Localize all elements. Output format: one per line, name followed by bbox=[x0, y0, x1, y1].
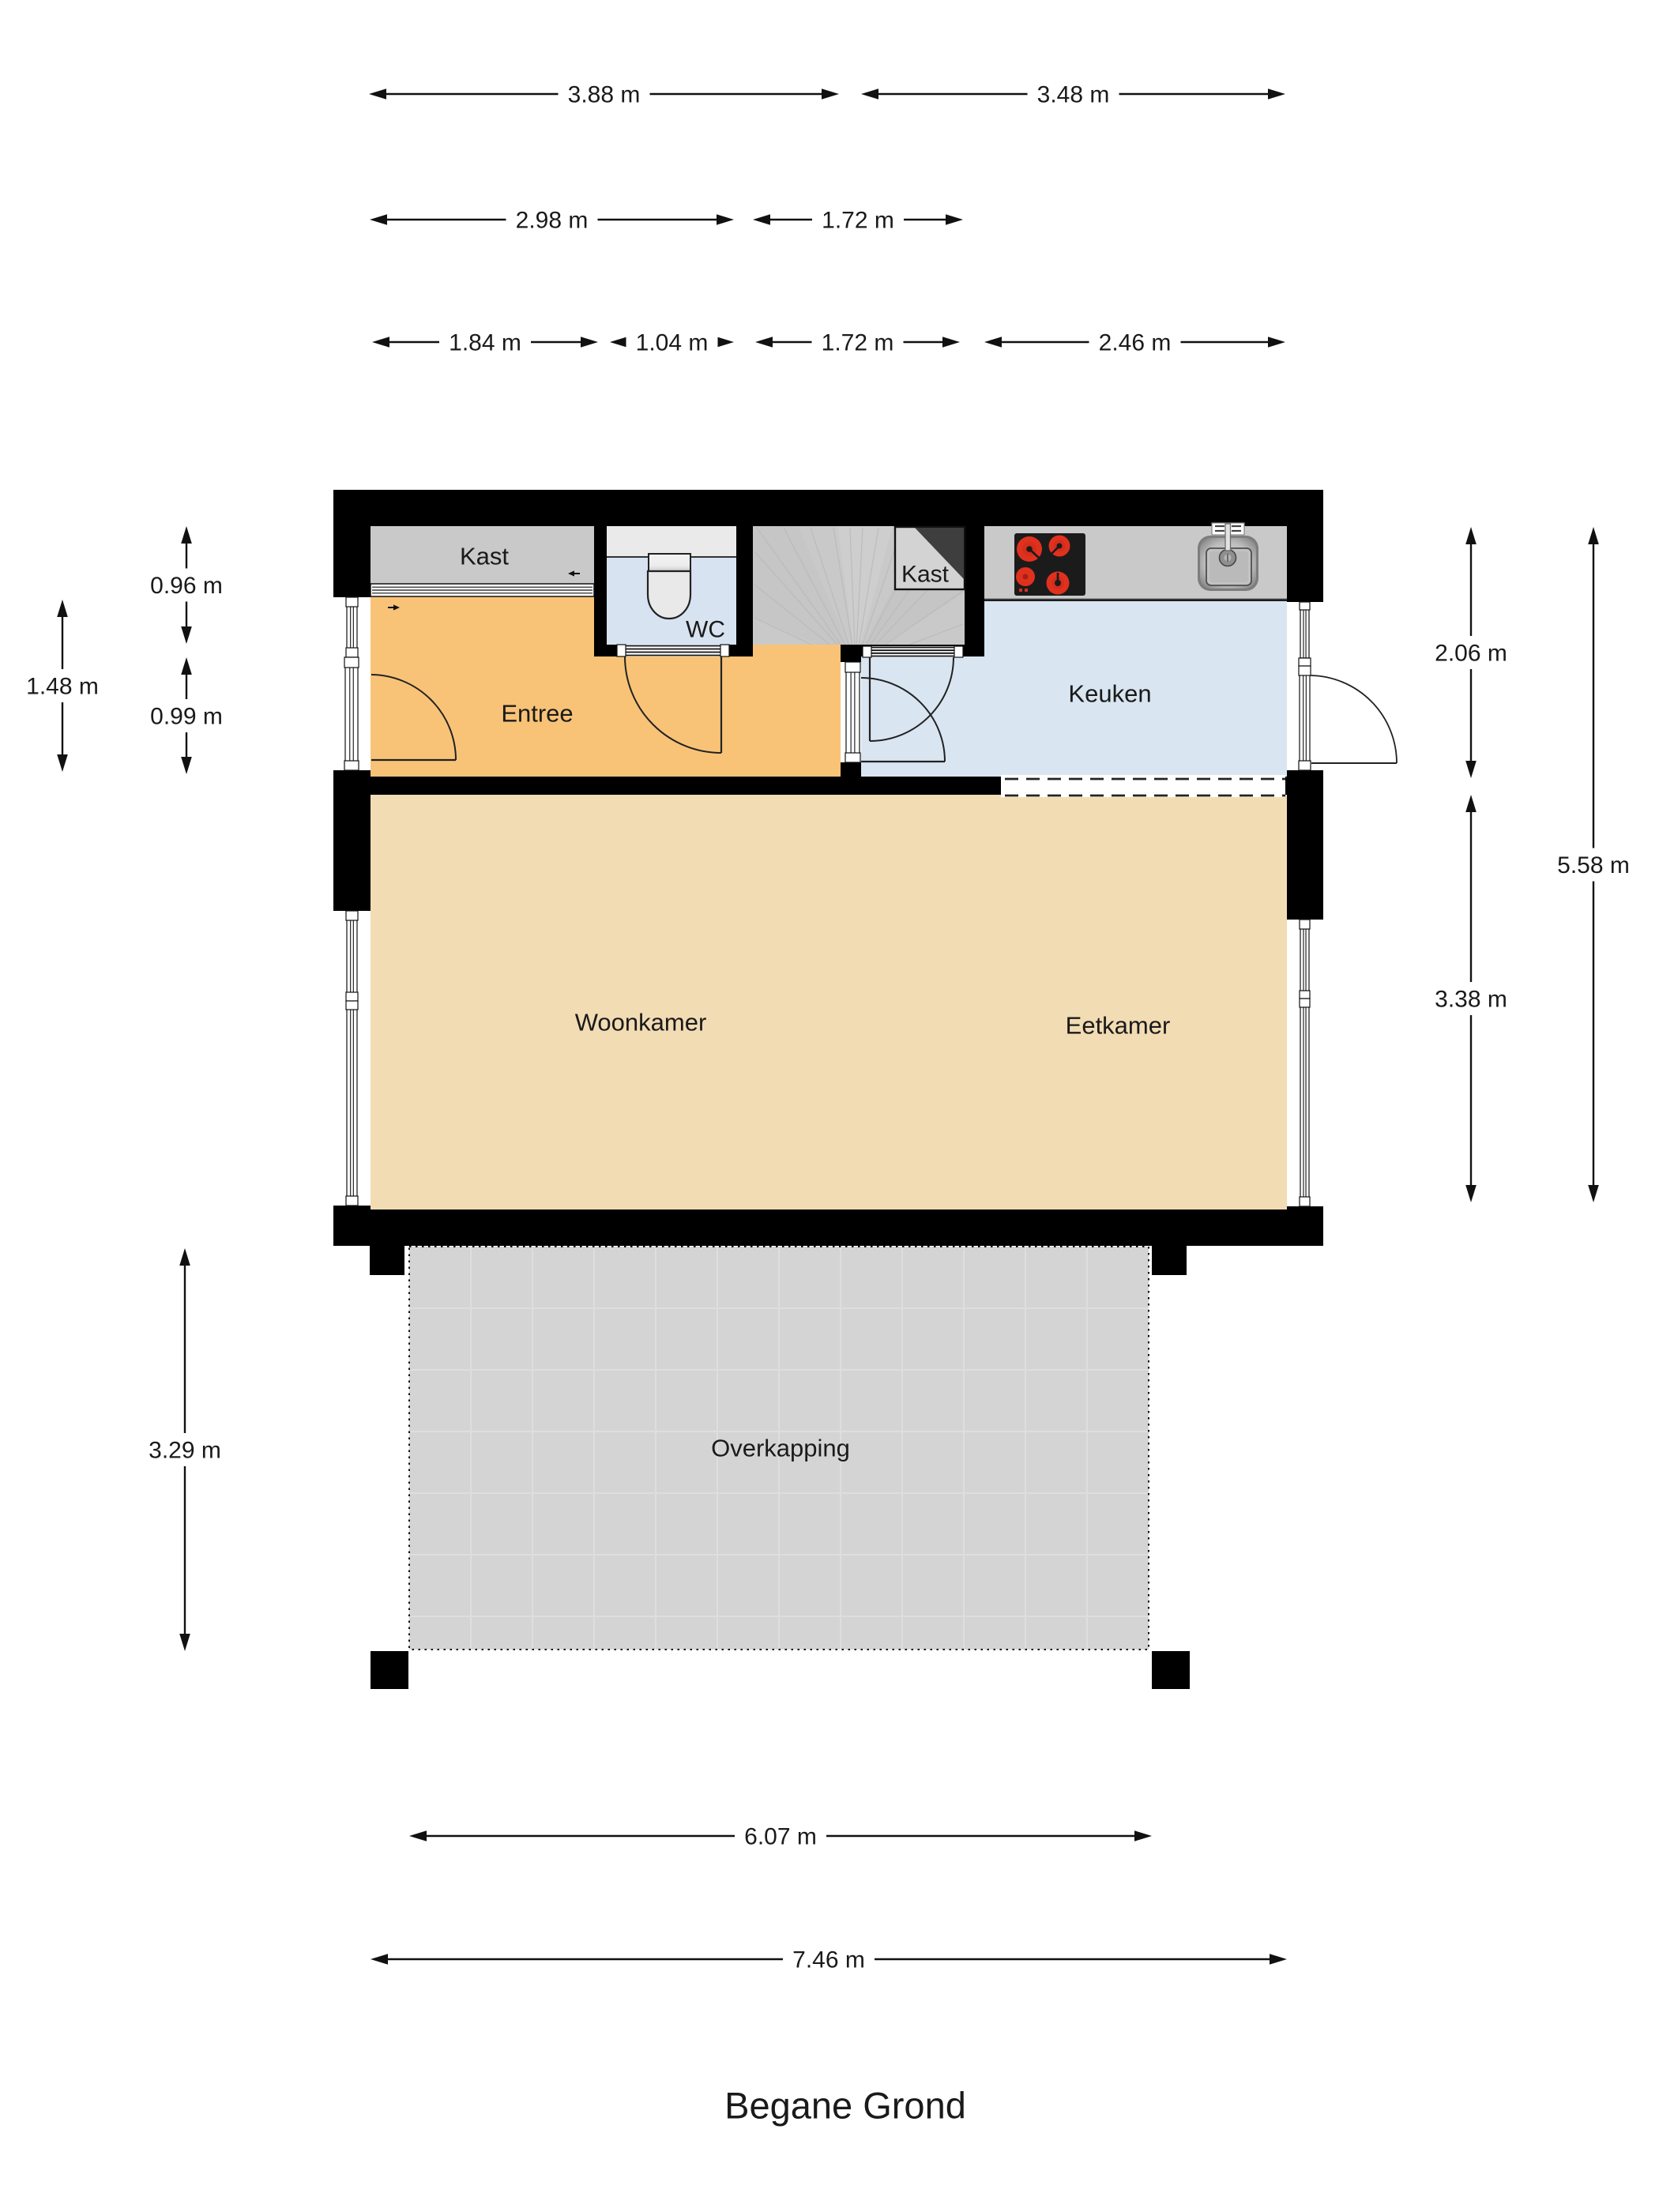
svg-text:WC: WC bbox=[686, 617, 725, 643]
svg-text:Woonkamer: Woonkamer bbox=[575, 1009, 707, 1036]
svg-text:1.72 m: 1.72 m bbox=[822, 330, 894, 356]
svg-text:5.58 m: 5.58 m bbox=[1557, 852, 1630, 878]
svg-text:Kast: Kast bbox=[901, 562, 950, 588]
svg-text:1.48 m: 1.48 m bbox=[26, 674, 99, 700]
svg-text:3.29 m: 3.29 m bbox=[149, 1438, 221, 1464]
svg-text:3.38 m: 3.38 m bbox=[1435, 987, 1507, 1013]
svg-text:Entree: Entree bbox=[501, 700, 573, 728]
svg-text:1.84 m: 1.84 m bbox=[449, 330, 521, 356]
svg-text:Keuken: Keuken bbox=[1068, 680, 1151, 708]
svg-text:Kast: Kast bbox=[460, 543, 509, 570]
svg-text:7.46 m: 7.46 m bbox=[792, 1947, 865, 1973]
svg-text:Eetkamer: Eetkamer bbox=[1066, 1012, 1171, 1040]
svg-text:Overkapping: Overkapping bbox=[711, 1435, 850, 1462]
svg-text:0.96 m: 0.96 m bbox=[150, 573, 223, 599]
svg-text:3.88 m: 3.88 m bbox=[568, 82, 641, 108]
svg-text:Begane Grond: Begane Grond bbox=[724, 2085, 966, 2127]
svg-text:1.04 m: 1.04 m bbox=[636, 330, 709, 356]
svg-text:2.46 m: 2.46 m bbox=[1099, 330, 1172, 356]
svg-text:2.98 m: 2.98 m bbox=[516, 208, 589, 234]
svg-text:0.99 m: 0.99 m bbox=[150, 704, 223, 730]
svg-text:1.72 m: 1.72 m bbox=[822, 208, 894, 234]
svg-text:6.07 m: 6.07 m bbox=[744, 1824, 817, 1850]
svg-text:2.06 m: 2.06 m bbox=[1435, 641, 1507, 667]
svg-text:3.48 m: 3.48 m bbox=[1037, 82, 1110, 108]
